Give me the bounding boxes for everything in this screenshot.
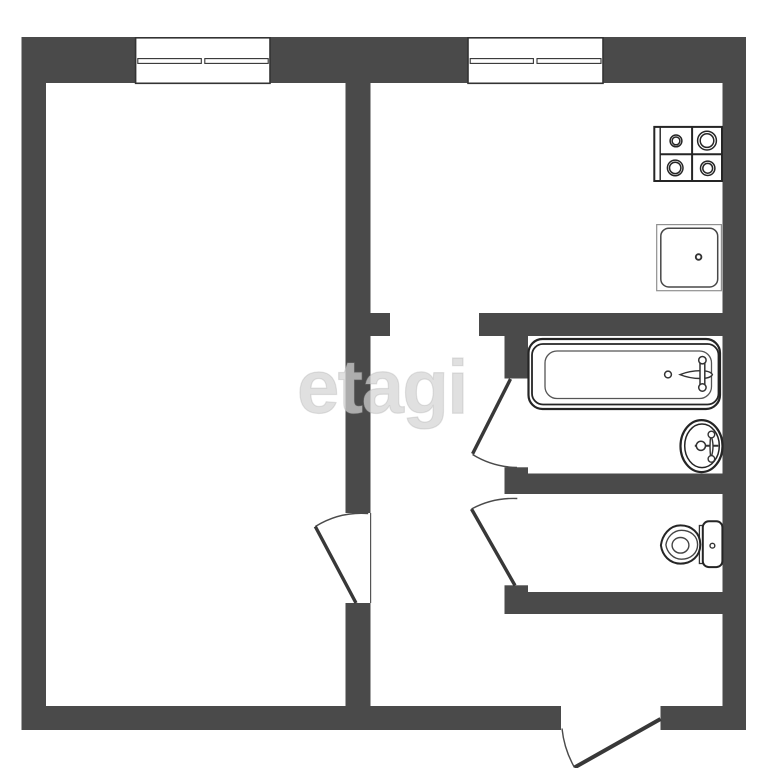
svg-text:etagi: etagi: [297, 345, 467, 430]
